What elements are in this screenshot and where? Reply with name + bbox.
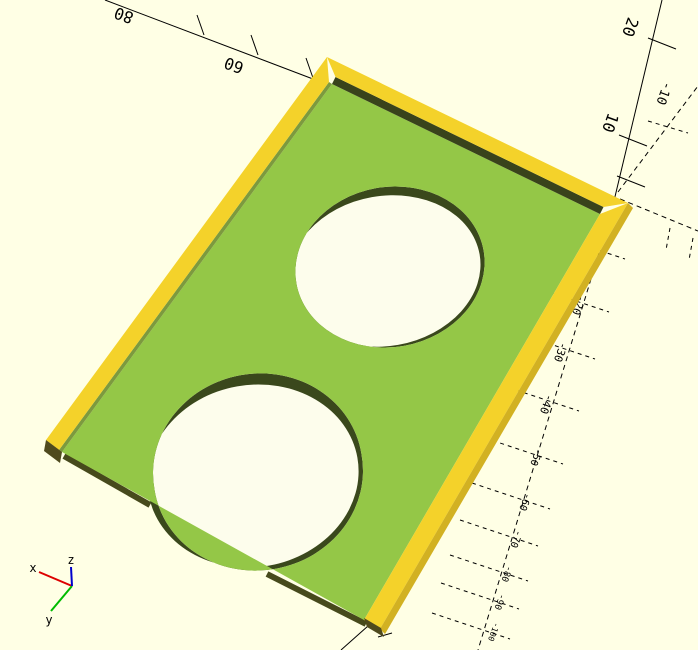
indicator-y-label: y — [45, 613, 52, 627]
render-canvas[interactable]: 60 80 20 10 -10 — [0, 0, 698, 650]
indicator-x-label: x — [29, 561, 36, 575]
openscad-3d-viewport[interactable]: 60 80 20 10 -10 — [0, 0, 698, 650]
indicator-z-arm — [71, 567, 72, 586]
indicator-z-label: z — [67, 553, 74, 567]
